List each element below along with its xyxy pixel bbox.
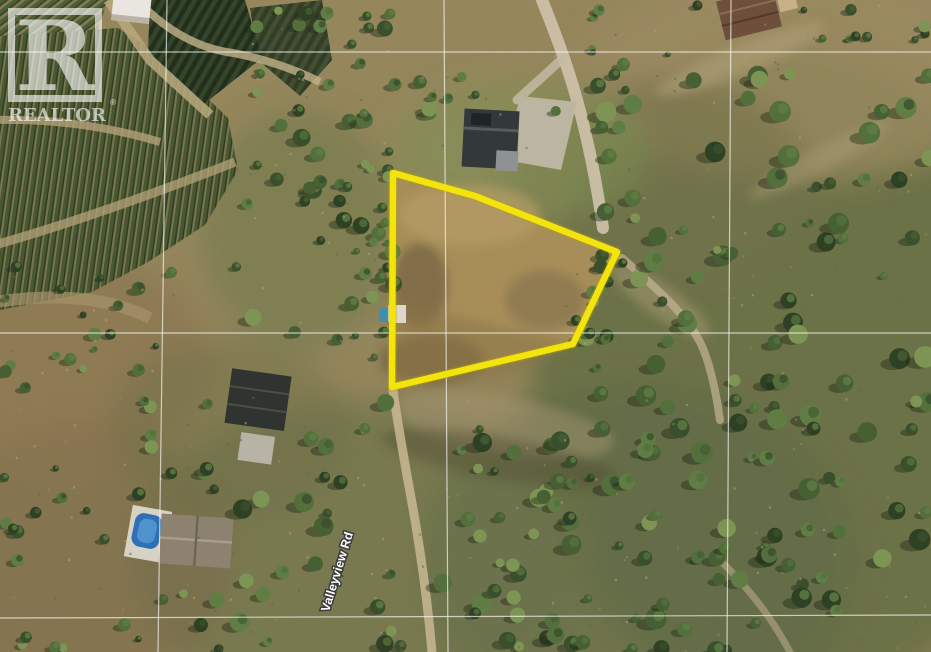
- map-viewport[interactable]: Valleyview Rd R REALTOR®: [0, 0, 931, 652]
- satellite-imagery: Valleyview Rd: [0, 0, 931, 652]
- barn-topleft: [111, 0, 152, 24]
